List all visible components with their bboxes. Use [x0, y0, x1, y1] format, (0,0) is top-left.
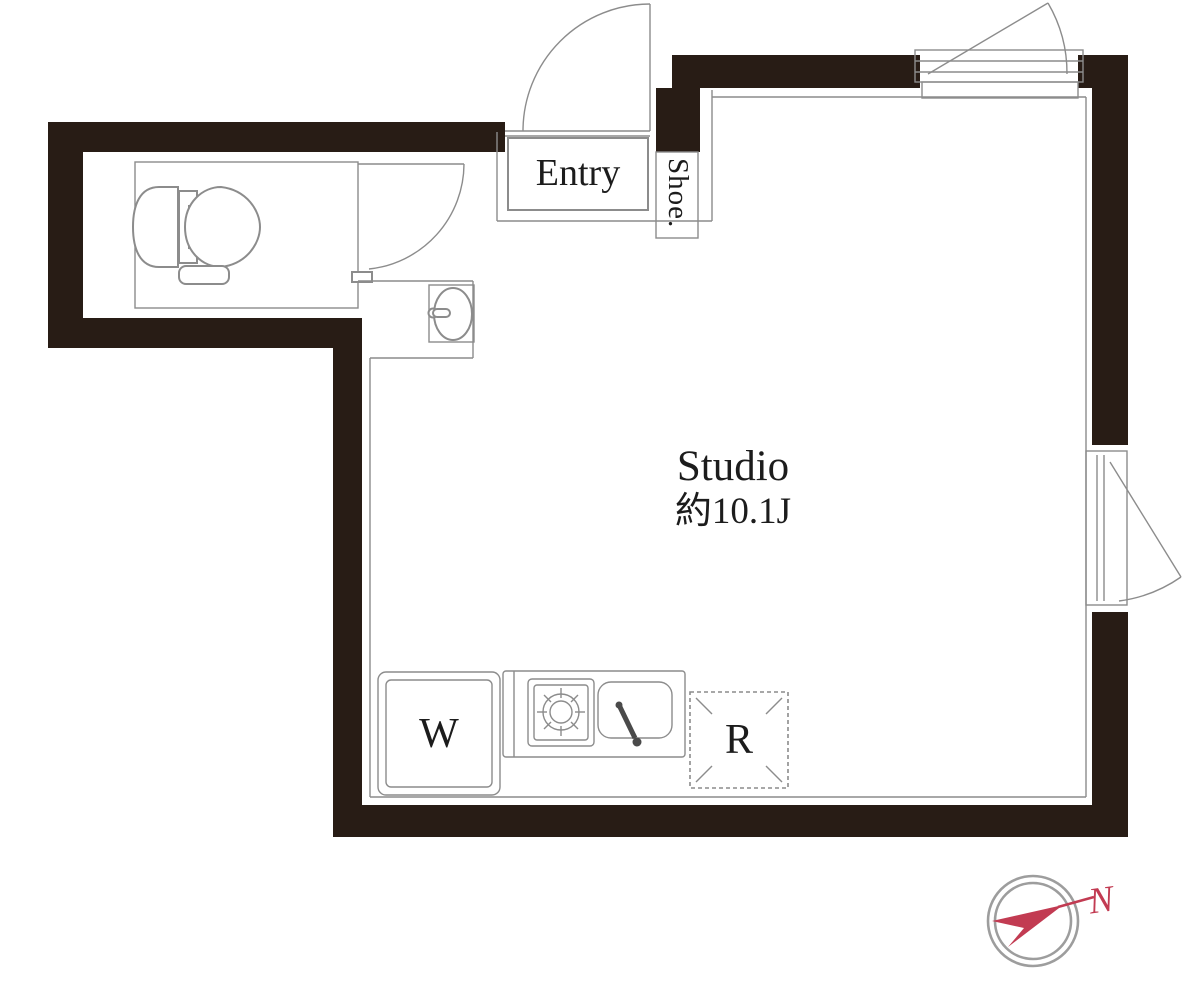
wall-right-lower	[1092, 612, 1128, 837]
wall-top-a	[672, 55, 920, 88]
entry-door-arc-icon	[523, 4, 650, 131]
kitchen-sink-icon	[598, 682, 672, 747]
kitchen-counter	[503, 671, 685, 757]
wall-left	[48, 122, 83, 348]
studio-area-label: 約10.1J	[648, 487, 818, 527]
refrigerator-label: R	[690, 692, 788, 788]
washer-label: W	[378, 672, 500, 795]
entry-label: Entry	[508, 138, 648, 208]
wall-entry-side	[656, 88, 700, 152]
window-right-icon	[1086, 451, 1181, 605]
wall-right-upper	[1092, 55, 1128, 445]
toilet-room	[133, 162, 464, 308]
wall-lower-left	[333, 318, 362, 837]
washbasin-icon	[358, 281, 474, 358]
wall-top-b	[1078, 55, 1128, 88]
north-arrow	[992, 905, 1063, 947]
wall-toilet-bottom	[48, 318, 362, 348]
burner-spokes	[537, 688, 585, 736]
window-top-icon	[915, 3, 1083, 98]
compass-north-label: N	[1069, 874, 1133, 926]
floor-plan: Entry Shoe. Studio 約10.1J W R N	[0, 0, 1202, 1008]
stove-icon	[528, 679, 594, 746]
wall-top-left	[48, 122, 505, 152]
toilet-icon	[133, 187, 260, 284]
shoe-storage-label: Shoe.	[650, 158, 694, 258]
wall-bottom	[333, 805, 1128, 837]
toilet-door-arc-icon	[352, 164, 464, 282]
